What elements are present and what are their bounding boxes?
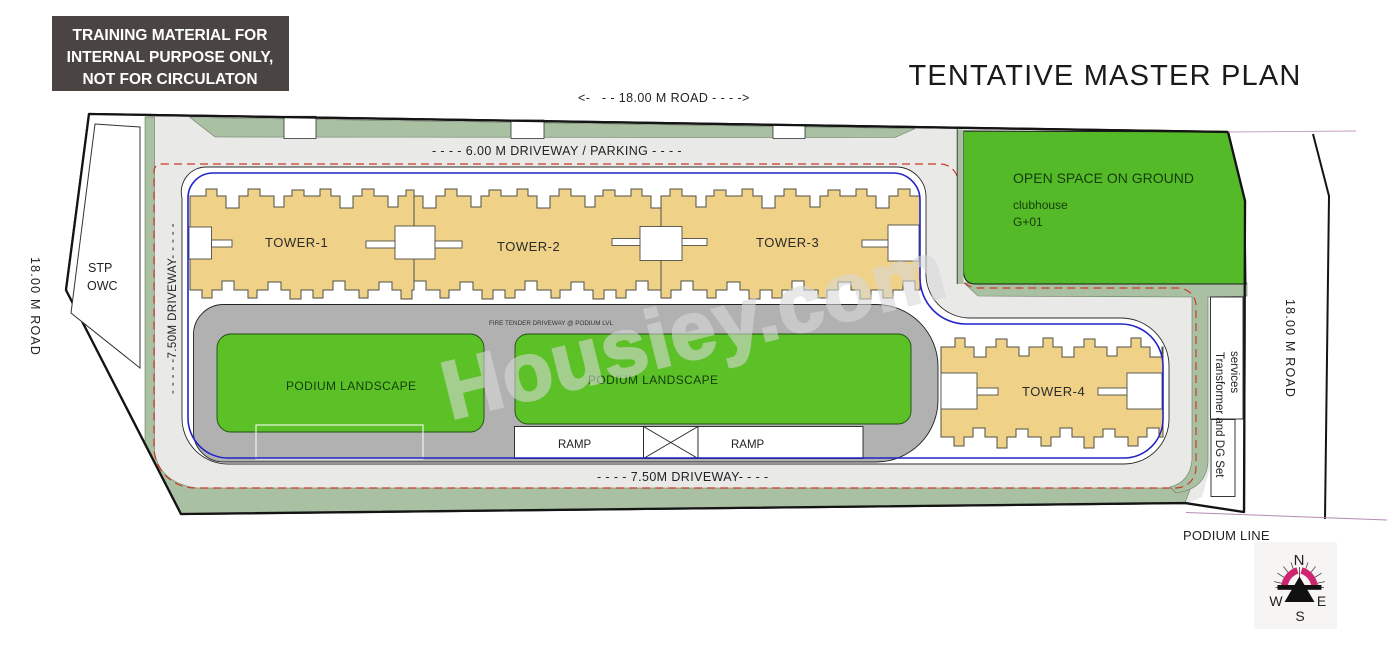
- svg-text:- - - - 7.50M DRIVEWAY- - -: - - - - 7.50M DRIVEWAY- - - -: [597, 470, 769, 484]
- svg-text:S: S: [1295, 608, 1304, 624]
- svg-text:18.00 M ROAD: 18.00 M ROAD: [1283, 299, 1297, 398]
- svg-text:NOT FOR CIRCULATON: NOT FOR CIRCULATON: [82, 71, 257, 88]
- svg-text:- - - - 6.00 M DRIVEWAY / PAR: - - - - 6.00 M DRIVEWAY / PARKING - - - …: [432, 144, 682, 158]
- svg-text:INTERNAL PURPOSE ONLY,: INTERNAL PURPOSE ONLY,: [67, 49, 274, 66]
- svg-text:TRAINING MATERIAL FOR: TRAINING MATERIAL FOR: [73, 27, 268, 44]
- svg-text:18.00 M ROAD: 18.00 M ROAD: [28, 257, 42, 356]
- svg-text:PODIUM LINE: PODIUM LINE: [1183, 528, 1270, 543]
- svg-text:TOWER-4: TOWER-4: [1022, 384, 1085, 399]
- svg-text:OWC: OWC: [87, 279, 118, 293]
- svg-text:W: W: [1269, 593, 1283, 609]
- svg-text:Transformer and DG Set: Transformer and DG Set: [1213, 352, 1225, 478]
- svg-text:- - - - -7.50M DRIVEWAY- - -: - - - - -7.50M DRIVEWAY- - - - -: [167, 223, 179, 394]
- svg-text:OPEN SPACE ON GROUND: OPEN SPACE ON GROUND: [1013, 170, 1194, 186]
- svg-text:TOWER-3: TOWER-3: [756, 235, 819, 250]
- svg-text:clubhouse: clubhouse: [1013, 198, 1068, 212]
- svg-text:services: services: [1228, 351, 1240, 393]
- svg-text:E: E: [1317, 593, 1326, 609]
- svg-text:G+01: G+01: [1013, 215, 1043, 229]
- svg-text:TOWER-2: TOWER-2: [497, 239, 560, 254]
- svg-text:PODIUM LANDSCAPE: PODIUM LANDSCAPE: [286, 379, 416, 393]
- svg-text:RAMP: RAMP: [731, 439, 765, 451]
- svg-text:STP: STP: [88, 261, 112, 275]
- svg-text:RAMP: RAMP: [558, 439, 592, 451]
- svg-text:<- - - 18.00 M ROAD - - - -: <- - - 18.00 M ROAD - - - ->: [578, 91, 750, 105]
- svg-text:TENTATIVE MASTER PLAN: TENTATIVE MASTER PLAN: [908, 60, 1301, 92]
- svg-text:N: N: [1294, 552, 1305, 569]
- svg-text:TOWER-1: TOWER-1: [265, 235, 328, 250]
